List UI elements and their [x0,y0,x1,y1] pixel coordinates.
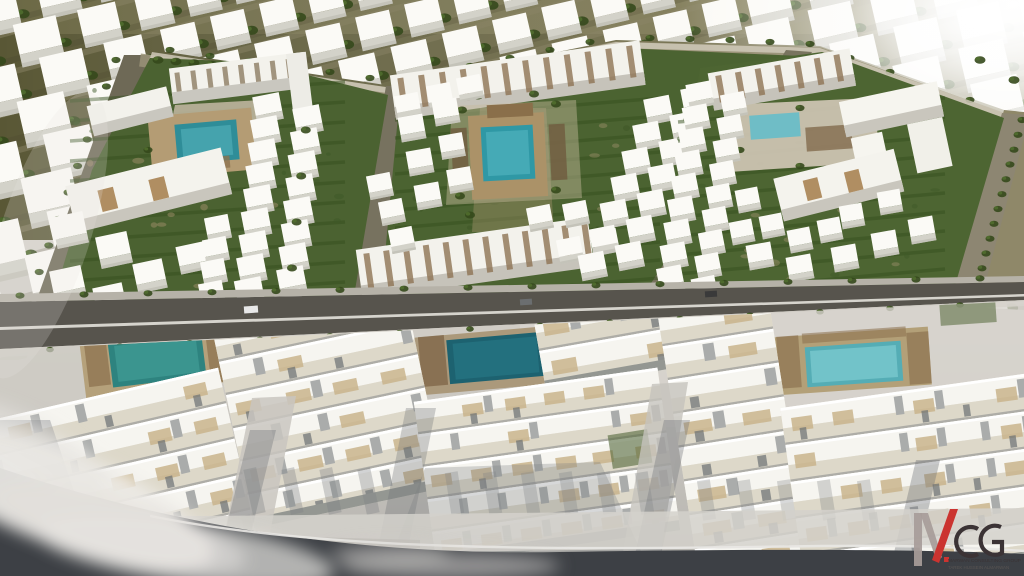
svg-text:MARWAN CONSULTING GROUP: MARWAN CONSULTING GROUP [948,558,1021,564]
svg-text:TAREK HUSSEIN ALMARWAN: TAREK HUSSEIN ALMARWAN [948,565,1009,570]
